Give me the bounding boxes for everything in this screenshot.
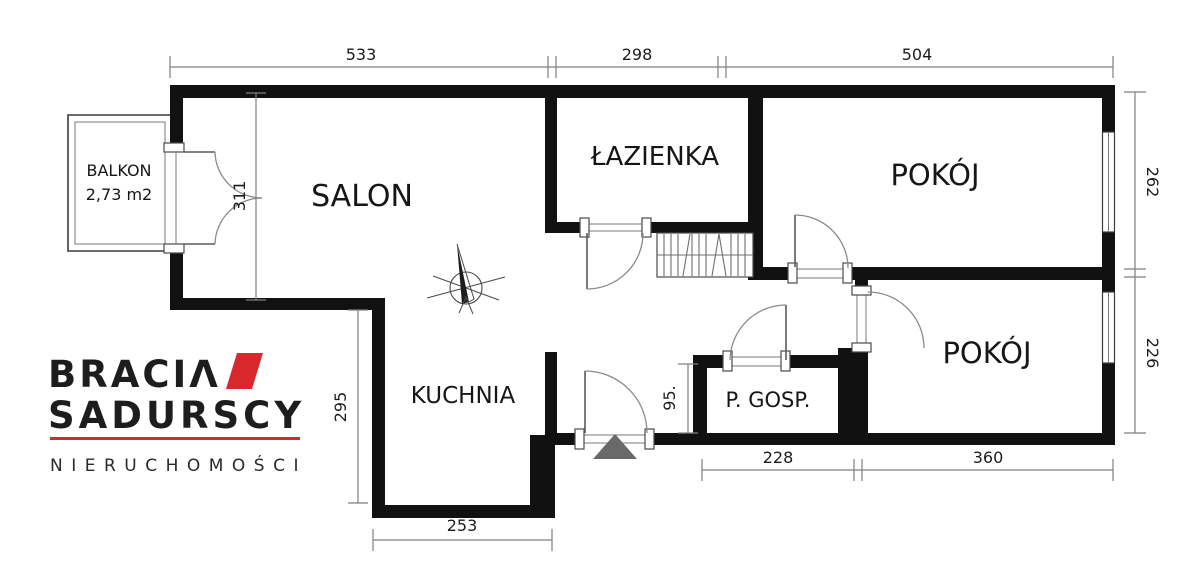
- room-label-balkon-area: 2,73 m2: [86, 185, 152, 204]
- dim-label-226: 226: [1143, 338, 1162, 369]
- wall-pgosp-top-right: [788, 355, 842, 368]
- logo-red-parallelogram-icon: [226, 353, 263, 389]
- door-swing-arc: [730, 305, 786, 360]
- dim-label-360: 360: [973, 448, 1004, 467]
- dim-label-533: 533: [346, 45, 377, 64]
- door-swing-arc: [587, 233, 643, 289]
- door-jamb: [575, 429, 584, 449]
- dim-label-262: 262: [1143, 167, 1162, 198]
- dim-label-298: 298: [622, 45, 653, 64]
- wall-hall-bottom-right: [650, 433, 1115, 445]
- balcony: [68, 115, 170, 251]
- north-arrow-icon: [427, 244, 505, 314]
- wall-right-seg2: [1102, 232, 1115, 292]
- wall-salon-bottom: [170, 298, 385, 310]
- entrance-triangle: [593, 434, 637, 459]
- wall-bath-bottom-right: [647, 222, 763, 233]
- brand-logo: BRACIΛ SADURSCY NIERUCHOMOŚCI: [48, 353, 307, 476]
- wall-salon-divider: [545, 96, 557, 233]
- room-label-lazienka: ŁAZIENKA: [590, 142, 719, 172]
- door-jamb: [164, 244, 184, 253]
- room-label-pgosp: P. GOSP.: [726, 388, 811, 412]
- dim-label-95: 95.: [660, 385, 679, 410]
- door-swing-arc: [585, 371, 647, 433]
- wall-pokoj1-bottom-left: [748, 267, 793, 280]
- door-jamb: [164, 143, 184, 152]
- floor-plan-page: 533 298 504 262 226 311 295 95. 228 360 …: [0, 0, 1200, 587]
- logo-brand-bottom: SADURSCY: [48, 394, 305, 437]
- dim-label-228: 228: [763, 448, 794, 467]
- wardrobe: [657, 233, 753, 277]
- wall-kitchen-left: [372, 298, 385, 518]
- wall-right-seg3: [1102, 363, 1115, 438]
- dim-label-295: 295: [331, 392, 350, 423]
- wall-pgosp-right-block: [838, 348, 868, 445]
- door-pokoj1: [788, 215, 852, 283]
- door-bathroom: [580, 218, 651, 289]
- dim-label-504: 504: [902, 45, 933, 64]
- door-swing-arc: [868, 292, 924, 348]
- wall-pgosp-left: [693, 355, 707, 445]
- floor-plan-drawing: 533 298 504 262 226 311 295 95. 228 360 …: [0, 0, 1200, 587]
- room-label-salon: SALON: [311, 179, 413, 214]
- dimension-labels: 533 298 504 262 226 311 295 95. 228 360 …: [230, 45, 1162, 535]
- door-swing-arc: [795, 215, 848, 268]
- logo-tagline: NIERUCHOMOŚCI: [50, 454, 307, 476]
- wall-right-seg1: [1102, 96, 1115, 134]
- wall-kitchen-stub: [545, 352, 557, 438]
- wall-top: [170, 85, 1115, 98]
- logo-red-underline: [50, 437, 300, 440]
- wall-pokoj1-bottom-right: [848, 267, 1115, 280]
- balcony-inner-rail: [75, 122, 165, 244]
- door-jamb: [852, 286, 871, 295]
- logo-brand-top: BRACIΛ: [48, 353, 221, 396]
- wall-bath-bottom-left: [545, 222, 585, 233]
- wall-kitchen-block: [530, 435, 555, 518]
- dim-label-311: 311: [230, 181, 249, 212]
- room-label-pokoj2: POKÓJ: [942, 336, 1031, 370]
- room-label-balkon: BALKON: [86, 161, 151, 180]
- dim-label-253: 253: [447, 516, 478, 535]
- door-pgosp: [723, 305, 790, 371]
- door-jamb: [852, 343, 871, 352]
- balcony-outer-rail: [68, 115, 170, 251]
- room-label-kuchnia: KUCHNIA: [411, 383, 516, 409]
- room-label-pokoj1: POKÓJ: [890, 158, 979, 192]
- door-pokoj2: [852, 286, 924, 352]
